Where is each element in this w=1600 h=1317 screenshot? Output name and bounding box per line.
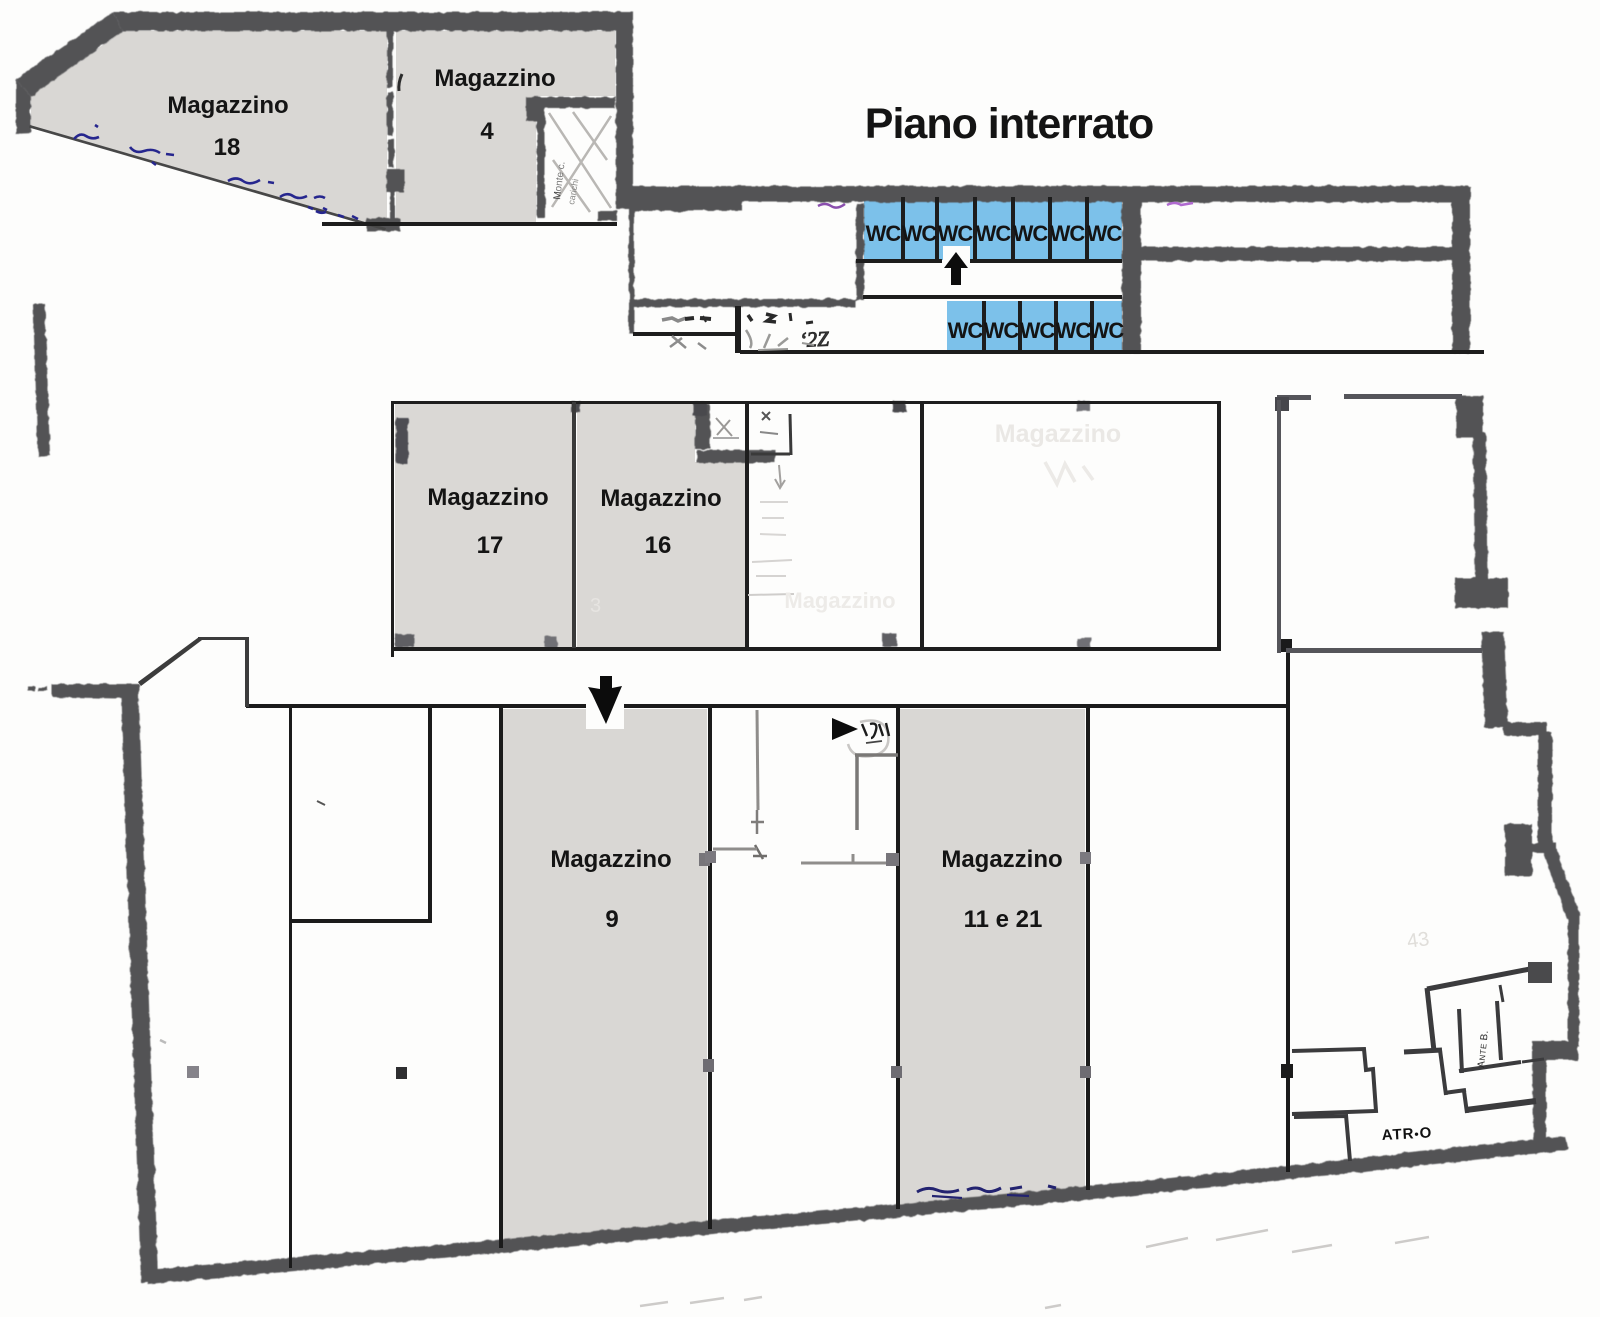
svg-text:Magazzino: Magazzino	[995, 420, 1121, 448]
svg-text:ATR•O: ATR•O	[1381, 1124, 1432, 1144]
svg-text:WC: WC	[948, 318, 984, 343]
svg-text:43: 43	[1406, 928, 1431, 953]
svg-text:Magazzino: Magazzino	[550, 846, 671, 873]
svg-text:WC: WC	[1020, 318, 1056, 343]
svg-text:4: 4	[480, 118, 494, 145]
svg-text:WC: WC	[902, 221, 938, 246]
svg-text:Magazzino: Magazzino	[167, 92, 288, 119]
svg-text:11 e 21: 11 e 21	[964, 906, 1043, 933]
svg-text:WC: WC	[1089, 318, 1125, 343]
svg-text:WC: WC	[938, 221, 974, 246]
svg-text:‘2Z: ‘2Z	[799, 326, 830, 352]
svg-text:WC: WC	[1013, 221, 1049, 246]
svg-text:Piano interrato: Piano interrato	[865, 100, 1153, 148]
svg-text:WC: WC	[984, 318, 1020, 343]
svg-text:16: 16	[645, 532, 672, 559]
svg-text:9: 9	[605, 906, 618, 933]
svg-text:17: 17	[477, 532, 504, 559]
svg-text:Magazzino: Magazzino	[600, 485, 721, 512]
svg-text:3: 3	[590, 595, 601, 617]
svg-text:Magazzino: Magazzino	[427, 484, 548, 511]
svg-text:Magazzino: Magazzino	[941, 846, 1062, 873]
svg-text:WC: WC	[1050, 221, 1086, 246]
svg-text:WC: WC	[1056, 318, 1092, 343]
svg-text:WC: WC	[976, 221, 1012, 246]
svg-text:Magazzino: Magazzino	[784, 588, 895, 613]
svg-text:WC: WC	[1087, 221, 1123, 246]
svg-text:18: 18	[214, 134, 241, 161]
svg-text:WC: WC	[866, 221, 902, 246]
svg-text:Magazzino: Magazzino	[434, 65, 555, 92]
